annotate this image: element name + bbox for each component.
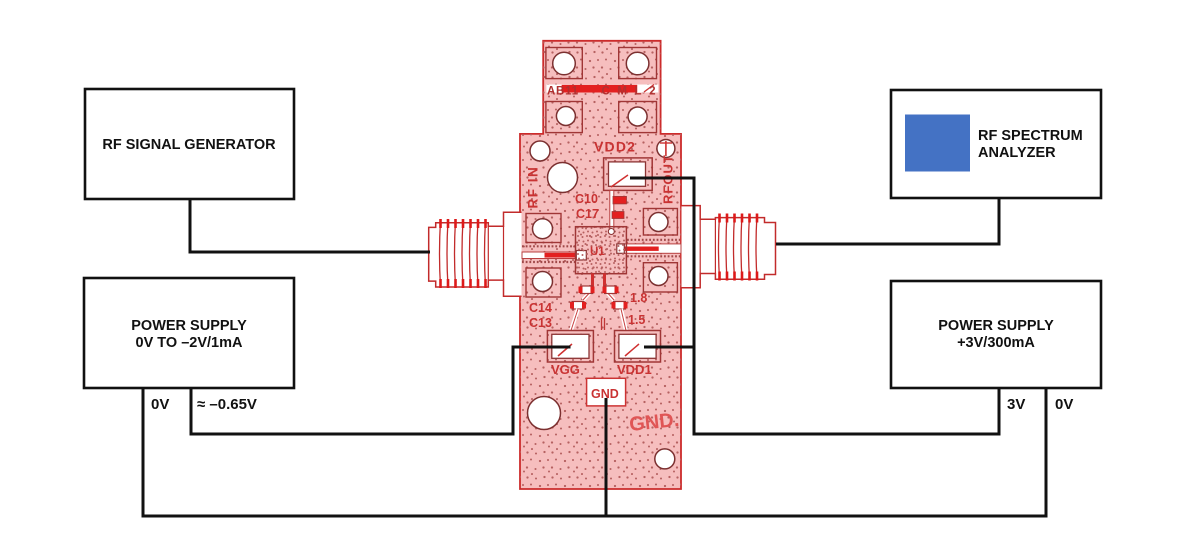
svg-text:C10: C10	[575, 192, 598, 206]
svg-text:ANALYZER: ANALYZER	[978, 145, 1056, 161]
svg-text:POWER SUPPLY: POWER SUPPLY	[938, 318, 1054, 334]
svg-text:0V: 0V	[151, 396, 169, 413]
svg-text:1.8: 1.8	[630, 291, 647, 305]
svg-text:U1: U1	[590, 246, 605, 258]
svg-text:0V: 0V	[1055, 396, 1073, 413]
svg-text:3V: 3V	[1007, 396, 1025, 413]
svg-text:C17: C17	[576, 207, 599, 221]
svg-text:+3V/300mA: +3V/300mA	[957, 335, 1035, 351]
svg-text:AB11: AB11	[547, 86, 579, 98]
svg-text:POWER SUPPLY: POWER SUPPLY	[131, 318, 247, 334]
svg-text:VDD1: VDD1	[617, 362, 652, 377]
svg-text:0V TO –2V/1mA: 0V TO –2V/1mA	[136, 335, 243, 351]
svg-text:RF IN: RF IN	[526, 166, 541, 209]
svg-text:RF SIGNAL GENERATOR: RF SIGNAL GENERATOR	[102, 137, 276, 153]
svg-text:C14: C14	[529, 301, 552, 315]
svg-text:VGG: VGG	[551, 362, 580, 377]
svg-text:≈ –0.65V: ≈ –0.65V	[197, 396, 257, 413]
svg-text:RF SPECTRUM: RF SPECTRUM	[978, 128, 1083, 144]
svg-text:VDD2: VDD2	[594, 139, 636, 155]
svg-text:C13: C13	[529, 316, 552, 330]
svg-text:1.5: 1.5	[628, 313, 645, 327]
